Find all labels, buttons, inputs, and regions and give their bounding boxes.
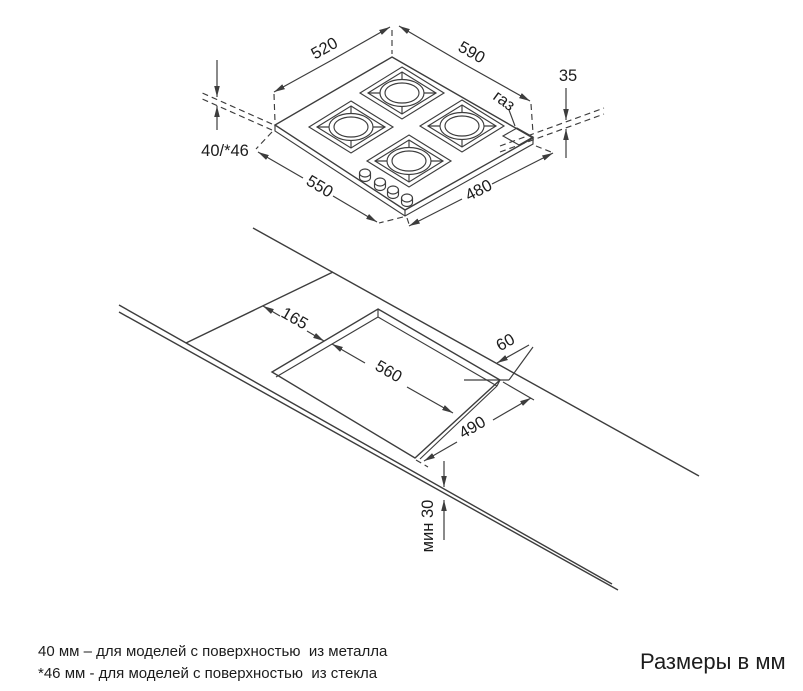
worktop-cutout-view: 165 560 60 490 мин 30 xyxy=(119,228,699,590)
burner-left xyxy=(309,101,393,153)
dim-165-label: 165 xyxy=(278,304,311,333)
rear-clearance-extension xyxy=(509,347,533,380)
worktop-front-edge xyxy=(119,305,612,584)
worktop-left-edge xyxy=(186,272,333,343)
units-caption: Размеры в мм xyxy=(640,649,786,674)
dim-min-30-label: мин 30 xyxy=(419,500,437,553)
dim-550-label: 550 xyxy=(303,172,336,201)
extension-lines-hob xyxy=(200,30,604,224)
footnote-glass: *46 мм - для моделей с поверхностью из с… xyxy=(38,665,378,682)
footnotes: 40 мм – для моделей с поверхностью из ме… xyxy=(38,643,388,682)
hob-isometric-view: 520 590 35 40/*46 550 480 газ xyxy=(200,26,604,226)
dim-560-label: 560 xyxy=(372,357,405,386)
dim-35-label: 35 xyxy=(559,67,577,85)
worktop-front-bottom-edge xyxy=(119,312,618,590)
gas-leader-line xyxy=(509,110,515,126)
burner-right xyxy=(420,100,504,152)
dim-60-label: 60 xyxy=(493,330,518,355)
front-corner-extension xyxy=(416,460,428,467)
dim-590-label: 590 xyxy=(455,38,488,67)
installation-diagram-canvas: 520 590 35 40/*46 550 480 газ xyxy=(0,0,803,691)
footnote-metal: 40 мм – для моделей с поверхностью из ме… xyxy=(38,643,388,660)
gas-label: газ xyxy=(490,87,519,115)
dim-490-label: 490 xyxy=(456,413,489,442)
hob-installation-drawing: 520 590 35 40/*46 550 480 газ xyxy=(0,0,803,691)
dim-40-46-label: 40/*46 xyxy=(201,142,249,160)
worktop-dimension-lines xyxy=(263,306,531,540)
burner-bottom xyxy=(367,135,451,187)
worktop-back-edge xyxy=(253,228,699,476)
burner-top xyxy=(360,67,444,119)
depth-extension xyxy=(503,382,534,400)
gas-connection-box xyxy=(503,128,533,145)
dim-520-label: 520 xyxy=(308,34,341,63)
